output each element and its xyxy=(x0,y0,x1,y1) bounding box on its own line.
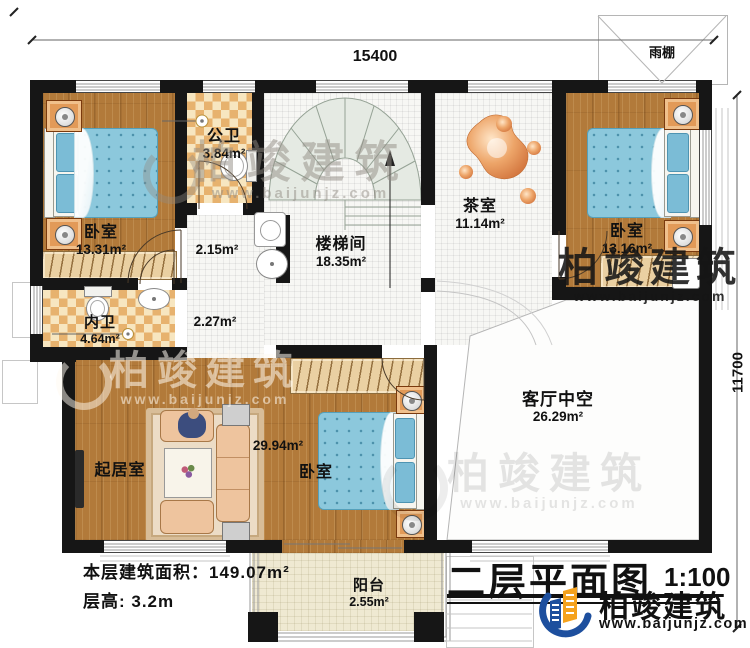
room-area: 4.64m² xyxy=(64,332,136,346)
room-label-bedroom-s-area: 29.94m² xyxy=(246,438,310,453)
note-floor-height: 层高: 3.2m xyxy=(83,587,174,612)
bed-bedroom-ne xyxy=(587,128,699,216)
wall-stair-tea xyxy=(421,93,435,205)
room-label-private-bath: 内卫 4.64m² xyxy=(64,315,136,346)
watermark-url: www.baijunjz.com xyxy=(434,496,664,512)
lamp-icon xyxy=(402,391,422,411)
nightstand xyxy=(396,510,426,538)
window-right-bedroom-ne xyxy=(699,130,712,225)
window-top-bedroom-ne xyxy=(608,80,696,93)
lamp-icon xyxy=(673,227,693,247)
washbasin-laundry-nook xyxy=(256,249,288,279)
window-bottom-living xyxy=(104,540,226,553)
room-area: 26.29m² xyxy=(503,409,613,424)
room-label-bedroom-ne: 卧室 13.16m² xyxy=(584,223,670,256)
lamp-icon xyxy=(673,105,693,125)
washing-machine xyxy=(254,212,286,247)
person-head xyxy=(188,408,199,419)
wall-left-lower xyxy=(62,350,75,552)
room-name: 客厅中空 xyxy=(503,390,613,409)
room-label-bedroom-s: 卧室 xyxy=(292,464,340,482)
window-left-private-bath xyxy=(30,286,43,334)
window-top-bedroom-nw xyxy=(76,80,160,93)
floor-plan-canvas: 卧室 13.31m² 公卫 3.84m² 2.15m² 2.27m² 楼梯间 1… xyxy=(0,0,750,648)
nightstand xyxy=(46,100,82,132)
exterior-sill-left xyxy=(12,282,32,338)
room-label-public-bath: 公卫 3.84m² xyxy=(190,128,258,161)
note-floor-area: 本层建筑面积：149.07m² xyxy=(83,558,290,583)
room-name: 楼梯间 xyxy=(302,236,380,254)
table-flowers xyxy=(180,464,196,478)
bed-pillow xyxy=(395,418,415,459)
exterior-stoop-left xyxy=(2,360,38,404)
room-name: 起居室 xyxy=(78,462,162,480)
brand-logo-icon xyxy=(536,584,594,638)
room-name: 茶室 xyxy=(445,198,515,216)
room-area: 29.94m² xyxy=(246,438,310,453)
wall-bedroom-s-east xyxy=(424,345,437,540)
washbasin-private-bath xyxy=(138,288,170,310)
room-label-void: 客厅中空 26.29m² xyxy=(503,390,613,424)
wall-tea-stub-south xyxy=(552,277,566,300)
wall-tea-bedroom-ne xyxy=(552,93,566,235)
sofa-main xyxy=(216,424,250,522)
room-name: 公卫 xyxy=(190,128,258,146)
bed-pillow xyxy=(395,462,415,503)
room-label-living-room: 起居室 xyxy=(78,462,162,480)
lamp-icon xyxy=(402,515,422,535)
cabinet-box xyxy=(672,258,700,289)
wall-public-bath-south-a xyxy=(187,203,197,215)
room-name: 内卫 xyxy=(64,315,136,332)
room-name: 阳台 xyxy=(338,578,400,595)
room-name: 卧室 xyxy=(584,223,670,241)
room-area: 11.14m² xyxy=(445,216,515,231)
bed-bedroom-nw xyxy=(44,128,156,216)
balcony-post-left xyxy=(248,612,278,642)
wall-private-bath-south xyxy=(30,347,187,360)
window-top-public-bath xyxy=(203,80,255,93)
room-area: 13.31m² xyxy=(56,242,146,257)
room-label-stairwell: 楼梯间 18.35m² xyxy=(302,236,380,269)
room-label-tea-room: 茶室 11.14m² xyxy=(445,198,515,231)
window-top-tea-room xyxy=(468,80,552,93)
watermark: 柏竣建筑 www.baijunjz.com xyxy=(434,452,664,512)
wall-hall-bedroom-s xyxy=(276,345,382,358)
wall-bedroom-nw-east xyxy=(175,93,187,228)
room-label-hallway: 2.27m² xyxy=(186,314,244,329)
room-label-bedroom-nw: 卧室 13.31m² xyxy=(56,224,146,257)
nightstand xyxy=(396,386,426,414)
nightstand xyxy=(664,98,700,130)
room-area: 3.84m² xyxy=(190,146,258,161)
bed-pillow xyxy=(667,174,689,213)
room-area: 18.35m² xyxy=(302,254,380,269)
room-area: 2.27m² xyxy=(186,314,244,329)
room-area: 2.15m² xyxy=(188,242,246,257)
balcony-door-threshold xyxy=(282,540,404,553)
dimension-top-label: 15400 xyxy=(330,48,420,66)
room-label-balcony: 阳台 2.55m² xyxy=(338,578,400,609)
lamp-icon xyxy=(55,107,75,127)
room-area: 13.16m² xyxy=(584,241,670,256)
sofa-armchair xyxy=(160,500,214,534)
wall-bedroom-nw-south-b xyxy=(172,278,187,290)
brand-website: www.baijunjz.com xyxy=(599,616,748,632)
room-name: 卧室 xyxy=(292,464,340,482)
room-label-laundry-nook: 2.15m² xyxy=(188,242,246,257)
room-floor-laundry-nook xyxy=(187,215,264,358)
side-table xyxy=(222,404,250,426)
wall-stair-tea-stub xyxy=(421,278,435,292)
washer-drum xyxy=(260,220,281,241)
dimension-right-label: 11700 xyxy=(730,335,747,411)
bed-pillow xyxy=(667,133,689,172)
bed-bedroom-s xyxy=(318,412,424,508)
window-top-stairwell xyxy=(316,80,408,93)
balcony-post-right xyxy=(414,612,444,642)
canopy-label: 雨棚 xyxy=(636,42,688,61)
watermark-text: 柏竣建筑 xyxy=(434,452,664,496)
room-area: 2.55m² xyxy=(338,595,400,609)
room-name: 卧室 xyxy=(56,224,146,242)
